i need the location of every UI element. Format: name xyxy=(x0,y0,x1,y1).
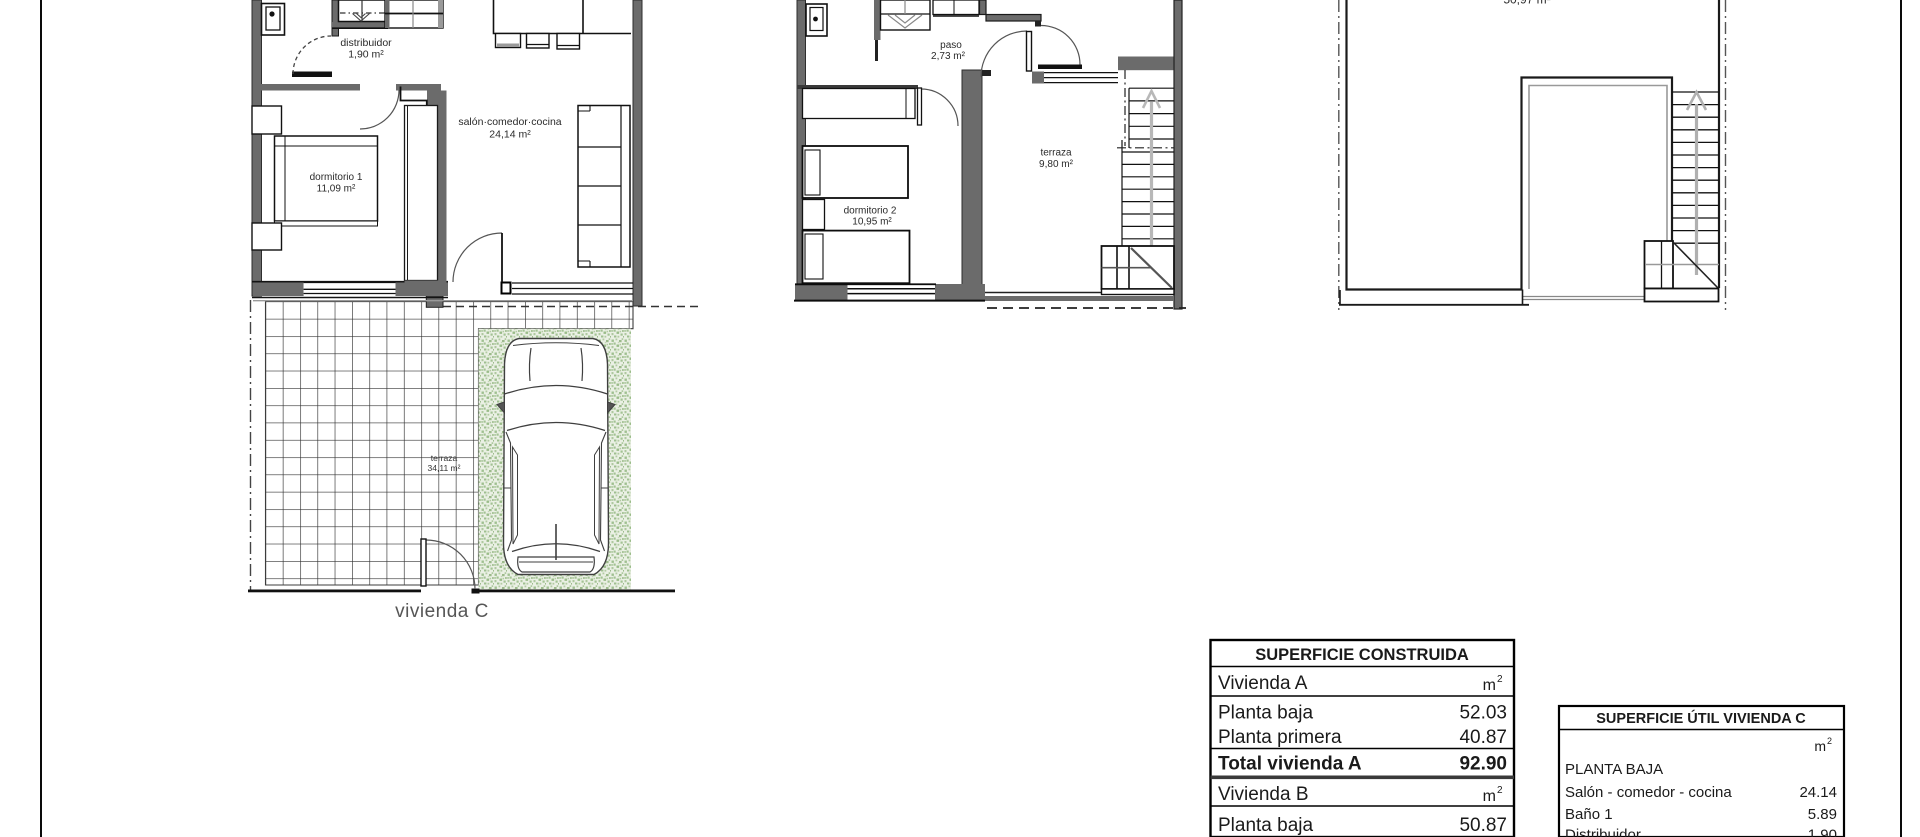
svg-text:2: 2 xyxy=(1827,736,1832,746)
svg-text:dormitorio 2: dormitorio 2 xyxy=(844,206,897,217)
svg-text:10,95 m²: 10,95 m² xyxy=(852,217,892,228)
svg-text:9,80 m²: 9,80 m² xyxy=(1039,159,1074,170)
svg-text:2: 2 xyxy=(1497,785,1503,796)
svg-text:Vivienda A: Vivienda A xyxy=(1218,673,1308,694)
svg-text:Vivienda B: Vivienda B xyxy=(1218,784,1309,805)
svg-text:2,73 m²: 2,73 m² xyxy=(931,51,966,62)
svg-text:m: m xyxy=(1814,738,1826,754)
svg-text:34,11 m²: 34,11 m² xyxy=(428,463,461,473)
svg-text:Total vivienda A: Total vivienda A xyxy=(1218,754,1362,775)
svg-text:paso: paso xyxy=(940,40,962,51)
svg-text:24,14 m²: 24,14 m² xyxy=(489,129,531,141)
svg-text:11,09 m²: 11,09 m² xyxy=(317,184,356,195)
svg-text:52.03: 52.03 xyxy=(1459,703,1507,724)
svg-text:Distribuidor: Distribuidor xyxy=(1565,827,1641,837)
svg-text:dormitorio 1: dormitorio 1 xyxy=(310,172,363,183)
svg-text:2: 2 xyxy=(1497,674,1503,685)
svg-text:Planta primera: Planta primera xyxy=(1218,727,1342,748)
svg-text:40.87: 40.87 xyxy=(1459,727,1507,748)
svg-text:m: m xyxy=(1483,788,1496,805)
svg-text:92.90: 92.90 xyxy=(1459,754,1507,775)
svg-text:Baño 1: Baño 1 xyxy=(1565,806,1613,823)
svg-text:Planta baja: Planta baja xyxy=(1218,815,1314,836)
svg-text:SUPERFICIE ÚTIL VIVIENDA C: SUPERFICIE ÚTIL VIVIENDA C xyxy=(1596,709,1806,727)
svg-text:24.14: 24.14 xyxy=(1799,784,1837,801)
svg-text:terraza: terraza xyxy=(431,453,458,463)
svg-text:Planta baja: Planta baja xyxy=(1218,703,1314,724)
svg-text:Salón - comedor - cocina: Salón - comedor - cocina xyxy=(1565,784,1732,801)
svg-text:m: m xyxy=(1483,677,1496,694)
svg-text:salón·comedor·cocina: salón·comedor·cocina xyxy=(458,116,561,128)
svg-text:1,90 m²: 1,90 m² xyxy=(348,49,384,61)
svg-text:5.89: 5.89 xyxy=(1808,806,1837,823)
svg-text:SUPERFICIE CONSTRUIDA: SUPERFICIE CONSTRUIDA xyxy=(1255,646,1469,664)
svg-text:1.90: 1.90 xyxy=(1808,827,1837,837)
svg-text:terraza: terraza xyxy=(1040,148,1072,159)
svg-text:distribuidor: distribuidor xyxy=(340,37,392,49)
svg-text:vivienda C: vivienda C xyxy=(395,601,489,622)
svg-text:50.87: 50.87 xyxy=(1459,815,1507,836)
svg-text:50,97 m²: 50,97 m² xyxy=(1503,0,1550,7)
svg-text:PLANTA BAJA: PLANTA BAJA xyxy=(1565,761,1663,778)
